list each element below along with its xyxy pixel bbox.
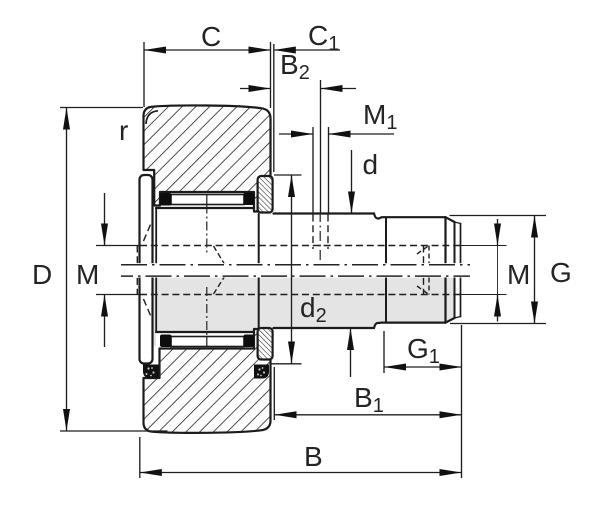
- svg-text:C: C: [201, 21, 221, 52]
- svg-text:M: M: [76, 259, 99, 290]
- svg-text:B1: B1: [354, 382, 384, 417]
- svg-text:B2: B2: [280, 49, 310, 84]
- svg-text:M: M: [507, 259, 530, 290]
- svg-text:G: G: [550, 257, 572, 288]
- svg-text:M1: M1: [363, 99, 397, 134]
- svg-text:r: r: [119, 115, 128, 146]
- svg-text:B: B: [304, 441, 323, 472]
- svg-text:d: d: [363, 149, 379, 180]
- svg-text:D: D: [32, 259, 52, 290]
- svg-text:C1: C1: [308, 20, 339, 55]
- svg-text:G1: G1: [407, 333, 440, 368]
